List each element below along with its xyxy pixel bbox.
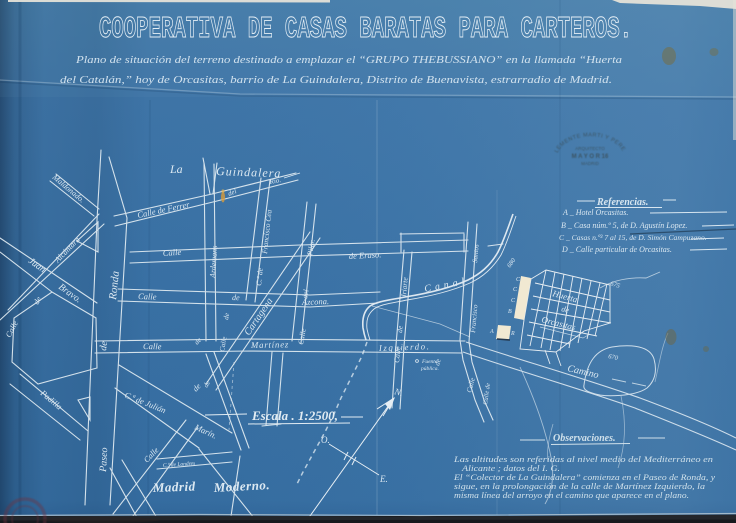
svg-text:E.: E.	[379, 474, 388, 484]
svg-text:Paseo: Paseo	[98, 447, 110, 473]
svg-text:El “Colector de La Guindalera”: El “Colector de La Guindalera” comienza …	[453, 473, 716, 482]
svg-text:La: La	[169, 162, 183, 176]
svg-text:Calle: Calle	[143, 341, 162, 351]
svg-text:Plano de situación del terreno: Plano de situación del terreno destinado…	[75, 54, 623, 66]
svg-text:Escala . 1:2500,: Escala . 1:2500,	[251, 408, 338, 423]
svg-text:sigue, en la prolongación de l: sigue, en la prolongación de la calle de…	[454, 482, 705, 491]
svg-text:Iriarte: Iriarte	[399, 276, 410, 298]
svg-text:Calle: Calle	[162, 247, 181, 258]
svg-text:D _ Calle particular de Orcasi: D _ Calle particular de Orcasitas.	[561, 245, 672, 254]
svg-text:Referencias.: Referencias.	[596, 197, 648, 208]
svg-text:Calle: Calle	[392, 346, 402, 364]
svg-text:Las altitudes son referidas al: Las altitudes son referidas al nivel med…	[453, 455, 713, 464]
svg-text:Izquierdo.: Izquierdo.	[378, 341, 431, 353]
svg-text:ARQUITECTO: ARQUITECTO	[575, 146, 605, 151]
svg-text:Martínez: Martínez	[250, 339, 289, 350]
svg-text:Calle: Calle	[138, 291, 157, 302]
svg-text:COOPERATIVA DE CASAS BARATAS P: COOPERATIVA DE CASAS BARATAS PARA CARTER…	[99, 12, 632, 47]
svg-text:O.: O.	[321, 435, 330, 445]
svg-text:Observaciones.: Observaciones.	[553, 433, 616, 444]
svg-text:Moderno.: Moderno.	[212, 477, 270, 495]
svg-text:Madrid: Madrid	[152, 479, 196, 496]
svg-text:del Catalán,” hoy de Orcasitas: del Catalán,” hoy de Orcasitas, barrio d…	[60, 74, 612, 86]
svg-text:misma línea del arroyo en el c: misma línea del arroyo en el camino que …	[454, 491, 689, 500]
svg-text:B: B	[508, 309, 512, 315]
svg-text:pública.: pública.	[420, 366, 439, 372]
svg-text:B _ Casa núm.º 5, de D. Agustí: B _ Casa núm.º 5, de D. Agustín Lopez.	[561, 221, 687, 230]
svg-text:Azcona.: Azcona.	[301, 296, 329, 307]
svg-text:de: de	[232, 293, 240, 302]
svg-text:M A Y O R 16: M A Y O R 16	[572, 154, 609, 160]
svg-text:de: de	[98, 340, 110, 351]
svg-text:de: de	[222, 312, 231, 320]
svg-text:R: R	[510, 331, 515, 337]
svg-text:MADRID: MADRID	[581, 161, 599, 166]
svg-text:de Eraso.: de Eraso.	[349, 249, 382, 261]
svg-text:Alicante ; datos del I. G.: Alicante ; datos del I. G.	[461, 464, 560, 473]
svg-text:Santos: Santos	[471, 244, 481, 264]
svg-text:Fuente: Fuente	[421, 359, 438, 365]
svg-text:A: A	[489, 329, 494, 335]
svg-text:A _ Hotel Orcasitas.: A _ Hotel Orcasitas.	[562, 208, 628, 217]
